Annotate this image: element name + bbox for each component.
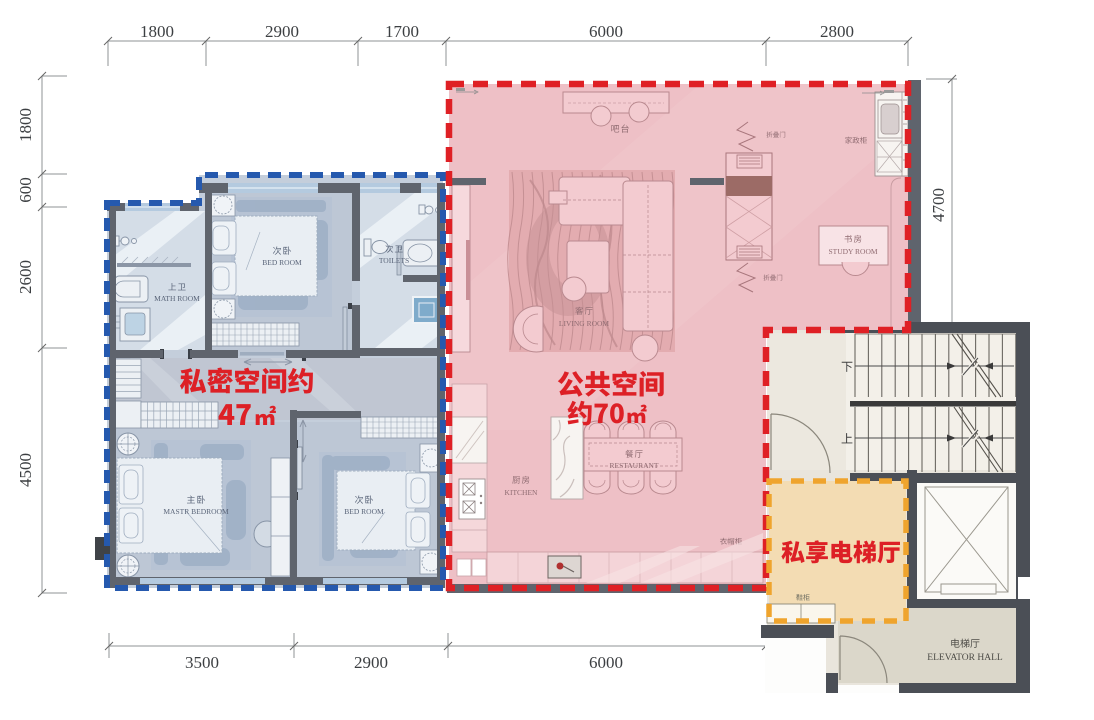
svg-text:LIVING ROOM: LIVING ROOM xyxy=(559,319,610,328)
svg-text:STUDY ROOM: STUDY ROOM xyxy=(828,247,877,256)
svg-text:2800: 2800 xyxy=(820,22,854,41)
svg-text:ELEVATOR HALL: ELEVATOR HALL xyxy=(927,653,1003,663)
svg-text:1800: 1800 xyxy=(16,108,35,142)
svg-text:KITCHEN: KITCHEN xyxy=(505,488,538,497)
svg-text:2900: 2900 xyxy=(354,653,388,672)
svg-text:600: 600 xyxy=(16,177,35,203)
svg-text:6000: 6000 xyxy=(589,22,623,41)
svg-text:MASTR BEDROOM: MASTR BEDROOM xyxy=(163,507,229,516)
svg-text:BED ROOM: BED ROOM xyxy=(262,258,302,267)
svg-text:2900: 2900 xyxy=(265,22,299,41)
svg-text:2600: 2600 xyxy=(16,260,35,294)
svg-text:6000: 6000 xyxy=(589,653,623,672)
svg-text:TOILETS: TOILETS xyxy=(379,256,409,265)
svg-text:1800: 1800 xyxy=(140,22,174,41)
svg-text:1700: 1700 xyxy=(385,22,419,41)
svg-text:MATH ROOM: MATH ROOM xyxy=(154,294,200,303)
svg-text:BED ROOM: BED ROOM xyxy=(344,507,384,516)
svg-text:3500: 3500 xyxy=(185,653,219,672)
svg-text:4700: 4700 xyxy=(929,188,948,222)
svg-text:RESTAURANT: RESTAURANT xyxy=(610,461,659,470)
svg-text:4500: 4500 xyxy=(16,453,35,487)
